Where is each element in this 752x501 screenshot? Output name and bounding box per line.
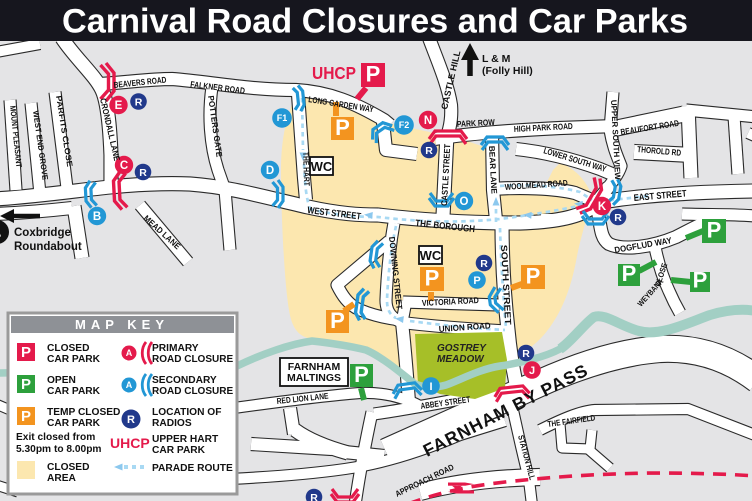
svg-text:CAR PARK: CAR PARK bbox=[152, 445, 206, 456]
svg-text:L & M: L & M bbox=[482, 53, 511, 65]
svg-text:Roundabout: Roundabout bbox=[14, 241, 82, 253]
svg-text:O: O bbox=[460, 196, 469, 208]
svg-text:AREA: AREA bbox=[47, 473, 77, 484]
svg-text:Exit closed from: Exit closed from bbox=[16, 432, 95, 443]
svg-text:R: R bbox=[139, 167, 147, 179]
svg-text:F1: F1 bbox=[277, 113, 288, 123]
svg-text:A: A bbox=[126, 380, 133, 390]
svg-text:Coxbridge: Coxbridge bbox=[14, 227, 71, 239]
svg-text:CAR PARK: CAR PARK bbox=[47, 418, 101, 429]
svg-text:K: K bbox=[598, 201, 607, 213]
svg-text:CLOSED: CLOSED bbox=[47, 462, 89, 473]
svg-text:CAR PARK: CAR PARK bbox=[47, 386, 101, 397]
svg-text:R: R bbox=[135, 96, 143, 108]
svg-text:SECONDARY: SECONDARY bbox=[152, 375, 217, 386]
svg-text:ROAD CLOSURE: ROAD CLOSURE bbox=[152, 354, 233, 365]
svg-text:P: P bbox=[366, 62, 381, 87]
svg-text:R: R bbox=[127, 414, 135, 426]
svg-text:PARADE ROUTE: PARADE ROUTE bbox=[152, 463, 233, 474]
svg-text:R: R bbox=[310, 492, 318, 501]
svg-text:P: P bbox=[622, 261, 637, 286]
svg-text:CAR PARK: CAR PARK bbox=[47, 354, 101, 365]
svg-text:P: P bbox=[707, 218, 722, 243]
svg-text:5.30pm to 8.00pm: 5.30pm to 8.00pm bbox=[16, 444, 102, 455]
svg-text:CLOSED: CLOSED bbox=[47, 343, 89, 354]
svg-text:RADIOS: RADIOS bbox=[152, 418, 192, 429]
svg-text:WC: WC bbox=[311, 159, 333, 174]
svg-text:R: R bbox=[425, 145, 433, 157]
svg-text:N: N bbox=[424, 115, 432, 127]
svg-text:B: B bbox=[93, 211, 101, 223]
svg-text:THE HART: THE HART bbox=[301, 152, 311, 186]
svg-text:I: I bbox=[429, 381, 432, 393]
svg-text:OPEN: OPEN bbox=[47, 375, 76, 386]
svg-text:P: P bbox=[330, 308, 345, 333]
svg-text:D: D bbox=[266, 165, 274, 177]
svg-text:P: P bbox=[21, 408, 31, 425]
svg-text:LOCATION OF: LOCATION OF bbox=[152, 407, 221, 418]
svg-text:P: P bbox=[693, 268, 708, 293]
svg-text:J: J bbox=[529, 365, 535, 377]
svg-text:TEMP CLOSED: TEMP CLOSED bbox=[47, 407, 120, 418]
svg-text:Carnival Road Closures and Car: Carnival Road Closures and Car Parks bbox=[62, 3, 688, 41]
svg-text:MALTINGS: MALTINGS bbox=[287, 372, 341, 384]
svg-text:PRIMARY: PRIMARY bbox=[152, 343, 199, 354]
svg-text:E: E bbox=[115, 100, 123, 112]
svg-text:WC: WC bbox=[420, 248, 442, 263]
svg-text:F2: F2 bbox=[399, 120, 410, 130]
svg-text:GOSTREY: GOSTREY bbox=[437, 343, 487, 354]
svg-text:UPPER HART: UPPER HART bbox=[152, 434, 219, 445]
svg-text:P: P bbox=[21, 344, 31, 361]
svg-text:UHCP: UHCP bbox=[110, 435, 150, 451]
svg-text:ROAD CLOSURE: ROAD CLOSURE bbox=[152, 386, 233, 397]
svg-text:A: A bbox=[126, 348, 133, 358]
svg-text:R: R bbox=[480, 258, 488, 270]
svg-text:(Folly Hill): (Folly Hill) bbox=[482, 65, 533, 77]
svg-text:R: R bbox=[614, 212, 622, 224]
svg-text:R: R bbox=[522, 348, 530, 360]
svg-text:P: P bbox=[335, 115, 350, 140]
svg-text:MEADOW: MEADOW bbox=[437, 354, 485, 365]
svg-text:MAP KEY: MAP KEY bbox=[75, 317, 169, 332]
svg-text:P: P bbox=[473, 275, 480, 287]
svg-text:UHCP: UHCP bbox=[312, 63, 356, 83]
svg-text:PARK ROW: PARK ROW bbox=[457, 117, 496, 129]
svg-text:P: P bbox=[354, 362, 369, 387]
svg-text:C: C bbox=[120, 160, 128, 172]
svg-text:P: P bbox=[425, 266, 440, 291]
svg-text:P: P bbox=[21, 376, 31, 393]
svg-text:P: P bbox=[526, 264, 541, 289]
